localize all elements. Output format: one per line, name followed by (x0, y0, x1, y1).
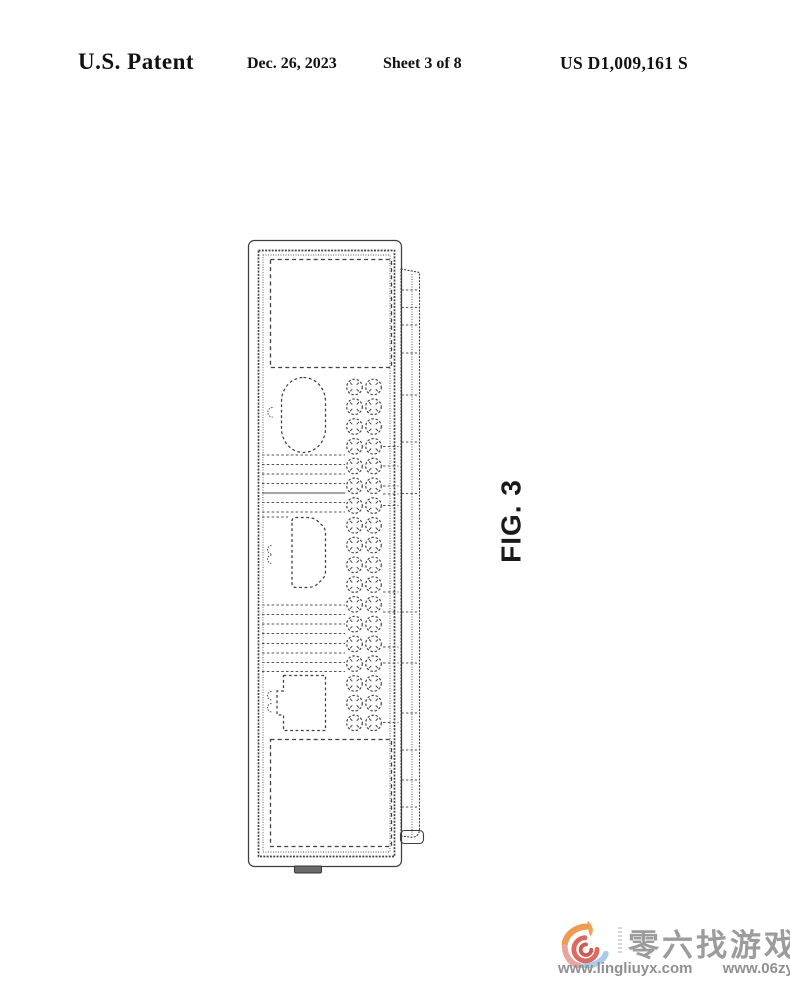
watermark-fineprint (618, 927, 622, 954)
ethernet-port-outline (277, 676, 326, 731)
watermark-url-right: www.06zyx.com (723, 960, 790, 977)
patent-drawing (0, 0, 790, 984)
watermark-url-left: www.lingliuyx.com (558, 960, 692, 977)
port-contact-mark (267, 546, 271, 554)
port-contact-mark (267, 555, 271, 563)
figure-label: FIG. 3 (492, 461, 532, 582)
oval-port-outline (282, 378, 326, 453)
watermark: 零六找游戏 www.lingliuyx.com www.06zyx.com (556, 918, 790, 982)
side-flange (401, 269, 424, 844)
circular-hole-grid (347, 379, 382, 731)
port-contact-mark (267, 704, 271, 712)
patent-sheet-page: U.S. Patent Dec. 26, 2023 Sheet 3 of 8 U… (0, 0, 790, 984)
rear-panel-face (259, 251, 395, 857)
top-dashed-cutout (271, 260, 392, 368)
d-shaped-port-outline (292, 518, 326, 588)
small-c-mark (268, 408, 273, 418)
bottom-dashed-cutout (271, 740, 392, 847)
rear-panel-face-inner (263, 255, 390, 852)
panel-texture-lines (262, 447, 399, 723)
mounting-foot (295, 866, 322, 873)
watermark-brand-text: 零六找游戏 (628, 920, 790, 965)
watermark-urls: www.lingliuyx.com www.06zyx.com (558, 960, 790, 977)
port-contact-mark (267, 692, 271, 700)
